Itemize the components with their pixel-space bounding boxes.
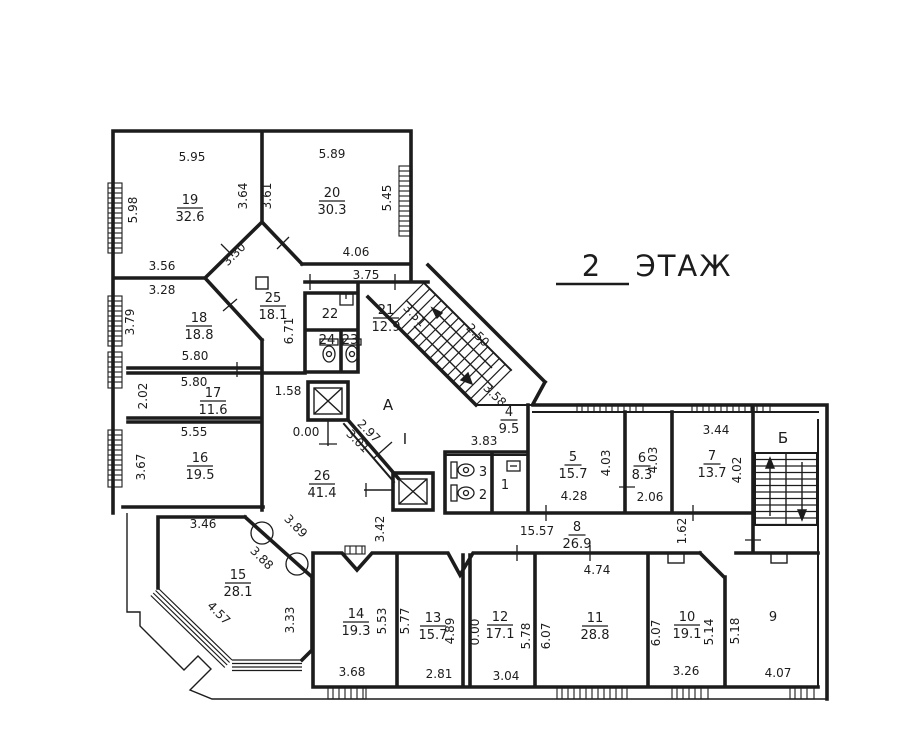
toilet-icon bbox=[451, 462, 474, 478]
sink-icon bbox=[507, 461, 520, 471]
dimension-label: 5.80 bbox=[181, 375, 208, 389]
dimension-label: 1.62 bbox=[675, 518, 689, 545]
room-label-26: 2641.4 bbox=[308, 469, 337, 501]
room-area: 30.3 bbox=[318, 203, 347, 218]
room-label-16: 1619.5 bbox=[186, 451, 215, 483]
room-number: 21 bbox=[378, 303, 395, 318]
room-label-5: 515.7 bbox=[559, 450, 588, 482]
room-label-12: 1217.1 bbox=[486, 610, 515, 642]
vent-shaft-square bbox=[256, 277, 268, 289]
dimension-label: 5.80 bbox=[182, 349, 209, 363]
room-label-10: 1019.1 bbox=[673, 610, 702, 642]
dimension-label: 5.78 bbox=[519, 623, 533, 650]
dimension-label: 3.64 bbox=[236, 183, 250, 210]
room-area: 9.5 bbox=[499, 422, 520, 437]
room-number: 12 bbox=[492, 610, 509, 625]
window-icon bbox=[108, 183, 122, 253]
room-area: 26.9 bbox=[563, 537, 592, 552]
zone-label-Б: Б bbox=[778, 429, 788, 447]
room-area: 28.8 bbox=[581, 628, 610, 643]
room-number: 20 bbox=[324, 186, 341, 201]
dimension-label: 6.07 bbox=[539, 623, 553, 650]
sink-icon bbox=[340, 294, 353, 305]
room-number-9: 9 bbox=[769, 610, 777, 625]
dimension-label: 4.89 bbox=[443, 618, 457, 645]
dimension-label: 5.98 bbox=[126, 197, 140, 224]
toilet-icon bbox=[451, 485, 474, 501]
dimension-label: 1.58 bbox=[275, 384, 302, 398]
room-label-18: 1818.8 bbox=[185, 311, 214, 343]
dimension-label: 6.07 bbox=[649, 620, 663, 647]
zone-label-А: А bbox=[383, 396, 394, 414]
room-area: 18.8 bbox=[185, 328, 214, 343]
dimension-label: 3.46 bbox=[190, 517, 217, 531]
room-number: 19 bbox=[182, 193, 199, 208]
floor-plan-drawing: 1932.62030.31818.82518.11711.61619.52641… bbox=[0, 0, 897, 754]
dimension-label: 5.77 bbox=[398, 608, 412, 635]
dimension-label: 3.88 bbox=[247, 544, 276, 573]
room-label-17: 1711.6 bbox=[199, 386, 228, 418]
room-area: 17.1 bbox=[486, 627, 515, 642]
dimension-label: 4.02 bbox=[730, 457, 744, 484]
dimension-label: 5.45 bbox=[380, 185, 394, 212]
window-icon bbox=[557, 687, 627, 699]
room-area: 41.4 bbox=[308, 486, 337, 501]
dimension-label: 3.30 bbox=[220, 240, 249, 269]
room-label-19: 1932.6 bbox=[176, 193, 205, 225]
room-label-11: 1128.8 bbox=[581, 611, 610, 643]
room-number: 6 bbox=[638, 451, 646, 466]
room-number: 7 bbox=[708, 449, 716, 464]
room-label-21: 2112.9 bbox=[372, 303, 401, 335]
room-number: 26 bbox=[314, 469, 331, 484]
dimension-label: 3.75 bbox=[353, 268, 380, 282]
dimension-label: 4.03 bbox=[646, 447, 660, 474]
room-label-14: 1419.3 bbox=[342, 607, 371, 639]
window-icon bbox=[345, 546, 365, 554]
room-number: 15 bbox=[230, 568, 247, 583]
room-number: 10 bbox=[679, 610, 696, 625]
room-number-3: 3 bbox=[479, 465, 487, 480]
dimension-label: 3.04 bbox=[493, 669, 520, 683]
room-area: 19.1 bbox=[673, 627, 702, 642]
dimension-label: 4.03 bbox=[599, 450, 613, 477]
window-icon bbox=[108, 352, 122, 388]
room-area: 15.7 bbox=[559, 467, 588, 482]
room-number-2: 2 bbox=[479, 488, 487, 503]
room-label-20: 2030.3 bbox=[318, 186, 347, 218]
window-icon bbox=[399, 166, 412, 236]
window-band-diagonal bbox=[151, 588, 302, 671]
dimension-label: 5.14 bbox=[702, 619, 716, 646]
dimension-label: 5.89 bbox=[319, 147, 346, 161]
dimension-label: 4.57 bbox=[204, 599, 233, 628]
dimension-label: 3.83 bbox=[471, 434, 498, 448]
zone-label-I: I bbox=[403, 430, 407, 448]
floor-title-number: 2 bbox=[582, 249, 602, 283]
dimension-label: 3.28 bbox=[149, 283, 176, 297]
dimension-label: 2.81 bbox=[426, 667, 453, 681]
room-label-8: 826.9 bbox=[563, 520, 592, 552]
room-number: 16 bbox=[192, 451, 209, 466]
dimension-label: 15.57 bbox=[520, 524, 554, 538]
dimension-label: 5.53 bbox=[375, 608, 389, 635]
room-area: 19.3 bbox=[342, 624, 371, 639]
dimension-label: 3.26 bbox=[673, 664, 700, 678]
dimension-label: 3.44 bbox=[703, 423, 730, 437]
dimension-label: 6.71 bbox=[282, 318, 296, 345]
room-number: 4 bbox=[505, 405, 513, 420]
room-number: 25 bbox=[265, 291, 282, 306]
room-area: 13.7 bbox=[698, 466, 727, 481]
room-number: 14 bbox=[348, 607, 365, 622]
floor-title-word: ЭТАЖ bbox=[635, 249, 732, 283]
dimension-label: 3.61 bbox=[260, 183, 274, 210]
room-number: 5 bbox=[569, 450, 577, 465]
room-number: 18 bbox=[191, 311, 208, 326]
dimension-label: 3.56 bbox=[149, 259, 176, 273]
dimension-label: 3.79 bbox=[123, 309, 137, 336]
room-number-24: 24 bbox=[319, 333, 336, 348]
room-area: 11.6 bbox=[199, 403, 228, 418]
dimension-label: 3.42 bbox=[373, 516, 387, 543]
room-number-1: 1 bbox=[501, 478, 509, 493]
dimension-label: 4.07 bbox=[765, 666, 792, 680]
dimension-label: 4.06 bbox=[343, 245, 370, 259]
dimension-label: 5.95 bbox=[179, 150, 206, 164]
dimension-label: 5.55 bbox=[181, 425, 208, 439]
room-area: 28.1 bbox=[224, 585, 253, 600]
title-block: 2 ЭТАЖ bbox=[556, 249, 733, 284]
room-number: 8 bbox=[573, 520, 581, 535]
room-label-15: 1528.1 bbox=[224, 568, 253, 600]
dimension-label: 2.02 bbox=[136, 383, 150, 410]
room-area: 32.6 bbox=[176, 210, 205, 225]
window-icon bbox=[108, 430, 122, 487]
room-number: 11 bbox=[587, 611, 604, 626]
room-number-23: 23 bbox=[342, 333, 359, 348]
room-number-22: 22 bbox=[322, 307, 339, 322]
dimension-label: 2.06 bbox=[637, 490, 664, 504]
dimension-label: 4.74 bbox=[584, 563, 611, 577]
dimension-label: 3.33 bbox=[283, 607, 297, 634]
dimension-label: 3.67 bbox=[134, 454, 148, 481]
floor-plan-page: 1932.62030.31818.82518.11711.61619.52641… bbox=[0, 0, 897, 754]
dimension-label: 3.68 bbox=[339, 665, 366, 679]
dimension-label: 4.28 bbox=[561, 489, 588, 503]
room-label-7: 713.7 bbox=[698, 449, 727, 481]
dimension-label: 0.00 bbox=[293, 425, 320, 439]
room-label-4: 49.5 bbox=[499, 405, 520, 437]
room-area: 12.9 bbox=[372, 320, 401, 335]
dimension-label: 3.89 bbox=[281, 512, 310, 541]
dimension-label: 5.18 bbox=[728, 618, 742, 645]
window-icon bbox=[108, 296, 122, 346]
room-number: 13 bbox=[425, 611, 442, 626]
dimension-label: 0.00 bbox=[468, 619, 482, 646]
room-area: 19.5 bbox=[186, 468, 215, 483]
